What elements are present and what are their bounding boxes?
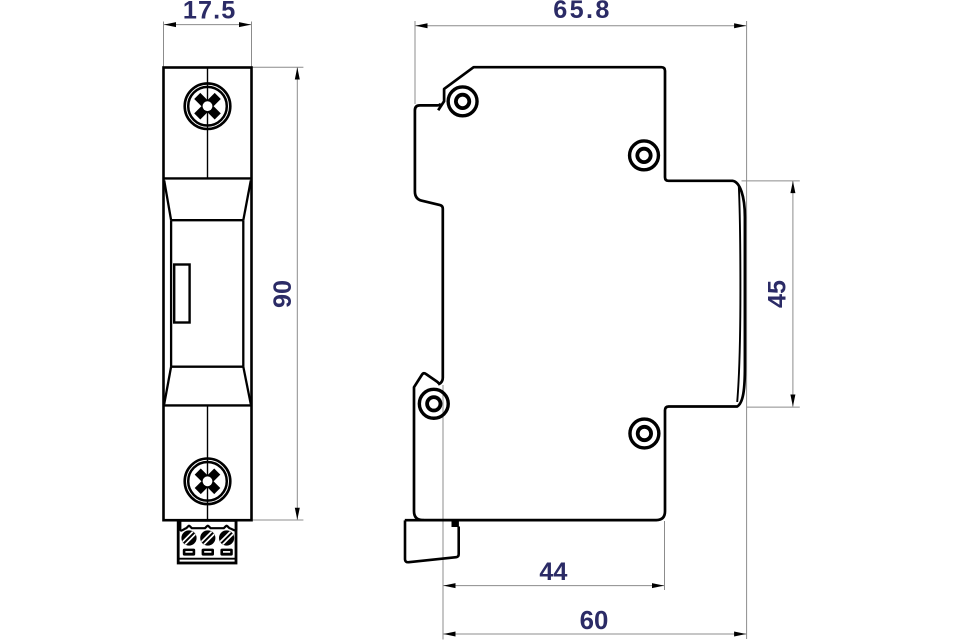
svg-text:45: 45 <box>764 280 792 308</box>
svg-text:90: 90 <box>269 280 297 308</box>
svg-text:60: 60 <box>580 607 609 635</box>
svg-text:65.8: 65.8 <box>553 0 612 24</box>
svg-text:44: 44 <box>539 558 567 586</box>
svg-text:17.5: 17.5 <box>183 0 236 24</box>
